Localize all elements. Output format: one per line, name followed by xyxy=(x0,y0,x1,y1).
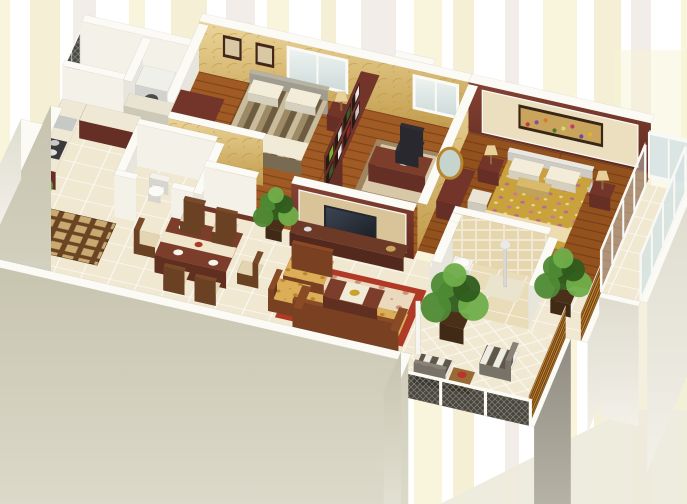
dining-centerpiece xyxy=(195,242,203,247)
terrace-table-flowers xyxy=(458,372,467,378)
console-decor-1 xyxy=(304,227,312,232)
shower-column xyxy=(504,247,507,287)
place-setting-4 xyxy=(208,260,218,266)
master-balcony-south-wall xyxy=(599,292,640,426)
floorplan-render: 3D isometric cutaway floor plan renderin… xyxy=(0,0,687,504)
apartment-isometric-scene xyxy=(0,0,687,504)
scene-layer xyxy=(0,0,687,504)
fruit-bowl xyxy=(350,290,360,296)
toilet-seat xyxy=(148,186,164,197)
console-decor-2 xyxy=(386,246,396,252)
master-round-mirror xyxy=(438,148,462,178)
place-setting-3 xyxy=(173,249,183,255)
bedroom2-picture-2 xyxy=(256,42,275,68)
bathroom-south-wall-left xyxy=(114,169,138,221)
bedroom2-picture-1 xyxy=(223,35,242,61)
shower-head xyxy=(500,241,510,249)
living-corner-column xyxy=(416,301,421,355)
